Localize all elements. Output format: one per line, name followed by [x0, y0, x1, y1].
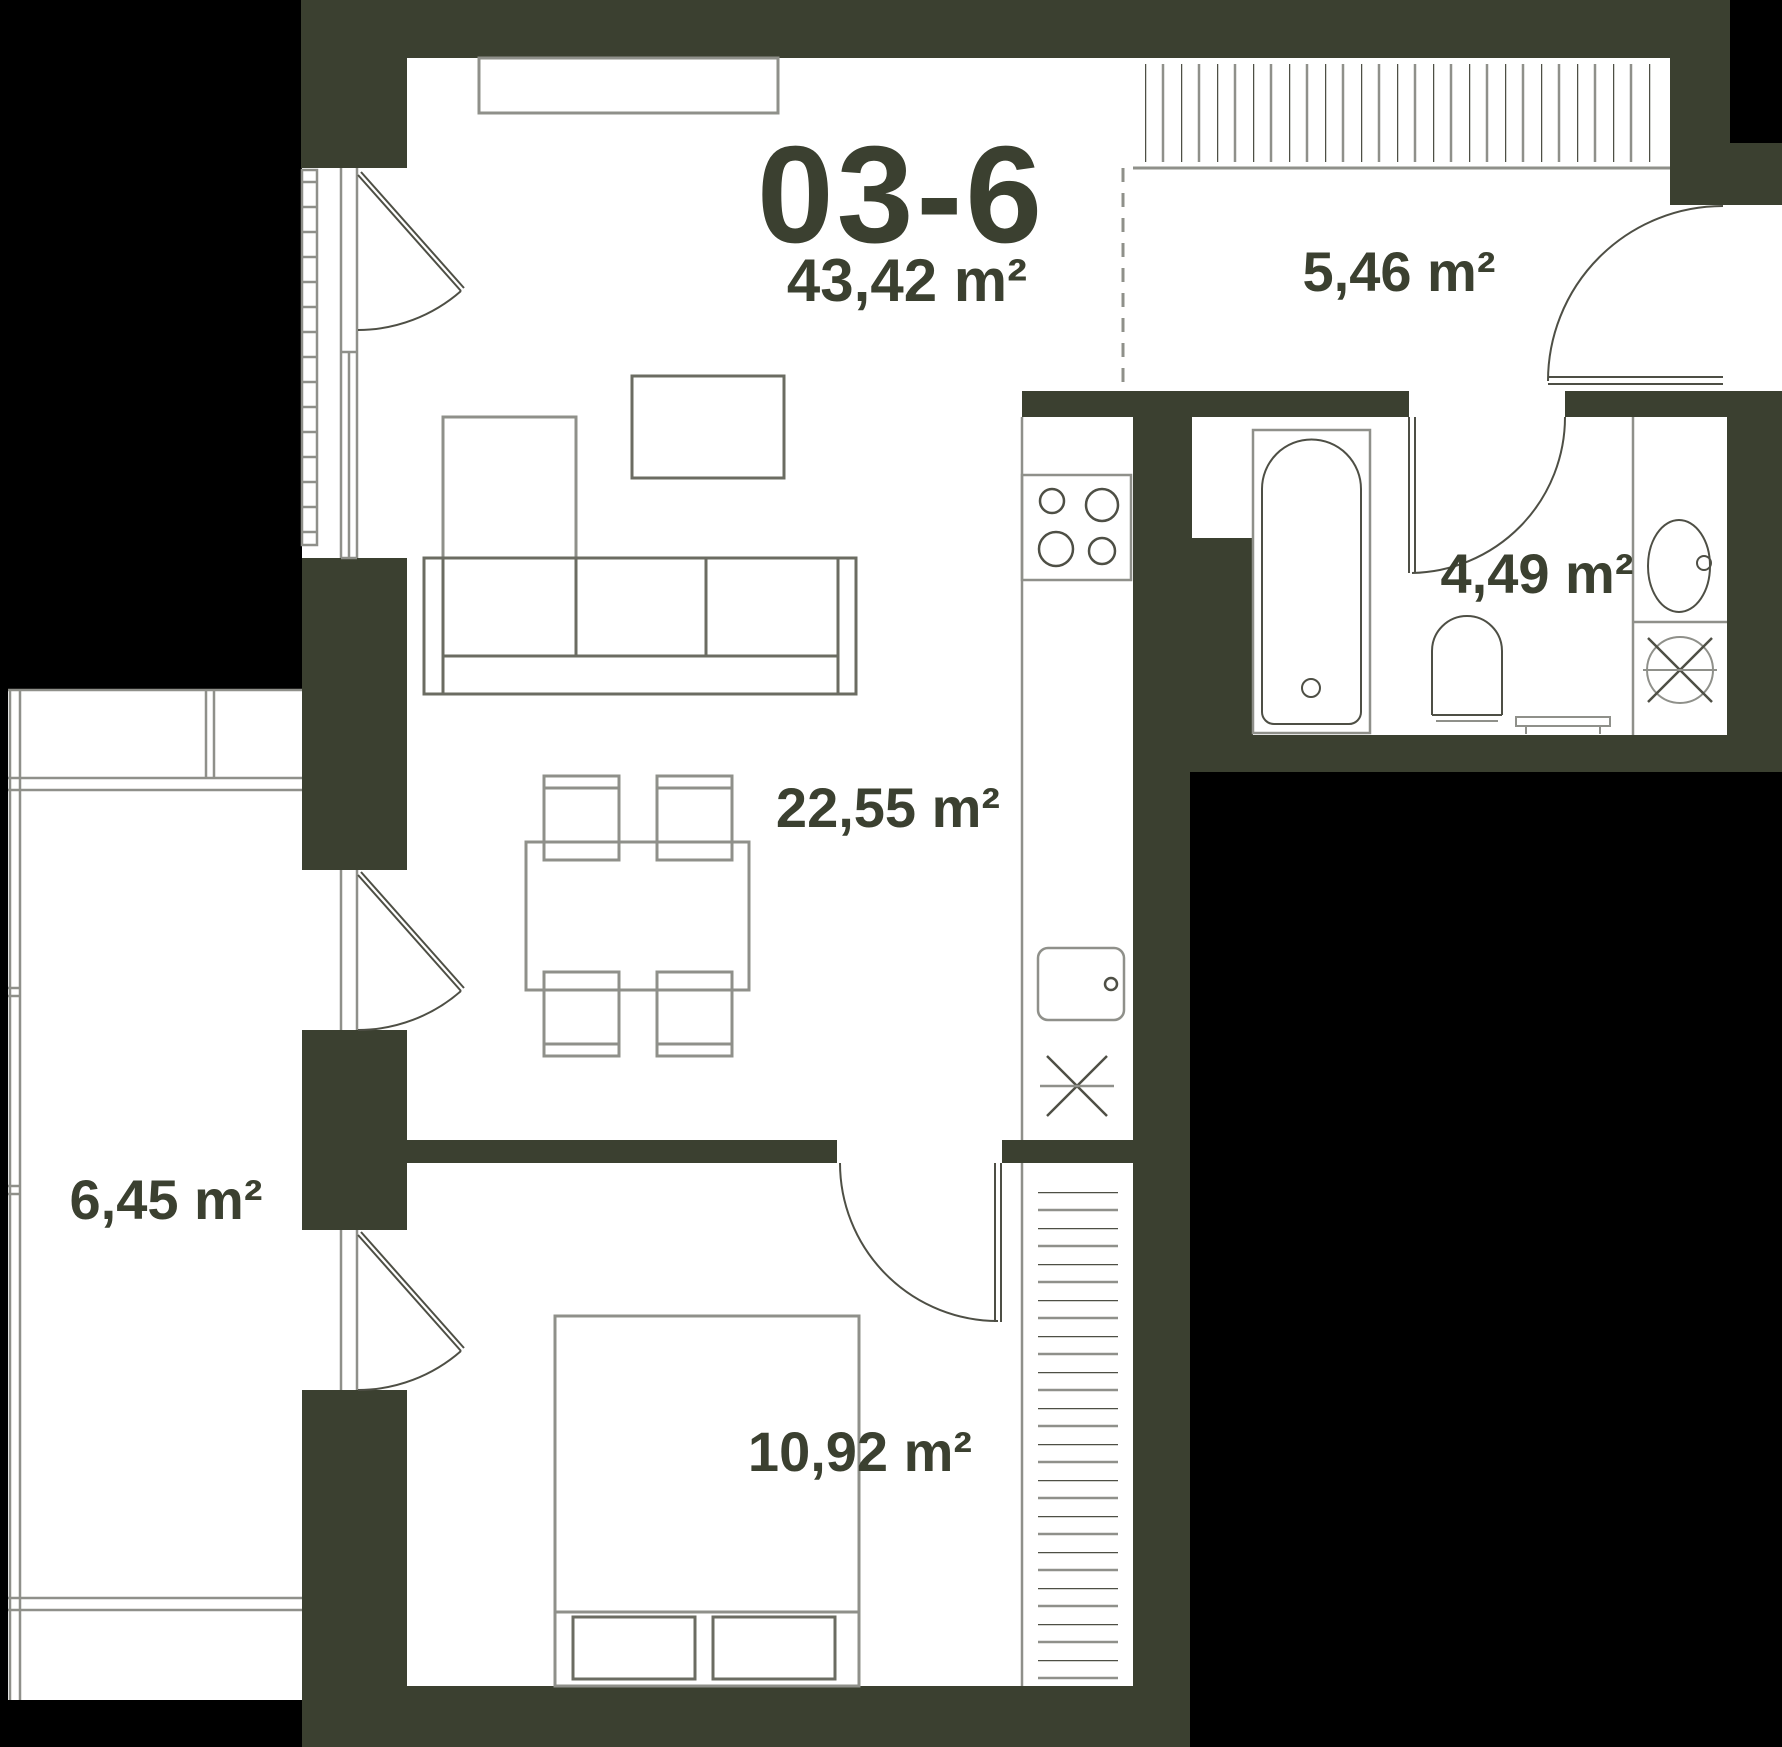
unit-code-label: 03-6 — [757, 126, 1045, 264]
unit-total-area-label: 43,42 m² — [787, 251, 1027, 311]
entrance-recess-floor — [1700, 205, 1782, 391]
living-area-label: 22,55 m² — [776, 780, 1000, 836]
french-balcony-railing-icon — [302, 170, 317, 545]
balcony-area-label: 6,45 m² — [70, 1172, 263, 1228]
wardrobe-hatch-icon — [1133, 64, 1670, 168]
bedroom-area-label: 10,92 m² — [748, 1424, 972, 1480]
hallway-area-label: 5,46 m² — [1303, 244, 1496, 300]
bathroom-area-label: 4,49 m² — [1441, 546, 1634, 602]
bedroom-door-opening — [837, 1140, 1002, 1163]
floor-plan: 03-6 43,42 m² 5,46 m² 4,49 m² 22,55 m² 1… — [0, 0, 1782, 1747]
balcony-door2-opening — [302, 1230, 407, 1390]
balcony-door1-opening — [302, 870, 407, 1030]
